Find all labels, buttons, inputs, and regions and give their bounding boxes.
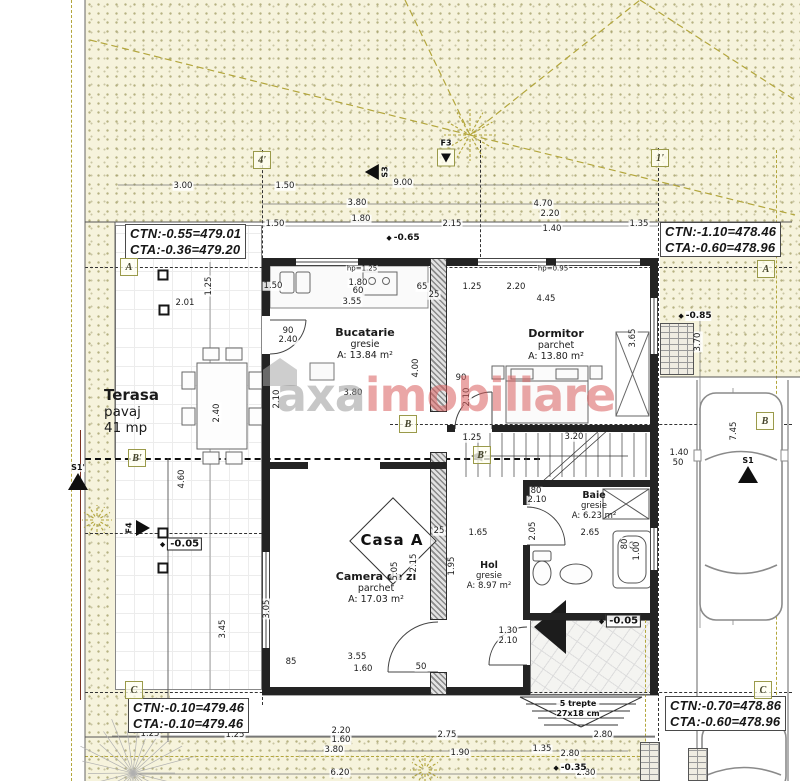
level-marker: ◆-0.65 bbox=[386, 233, 419, 243]
dimension-label: 25 bbox=[433, 527, 446, 536]
wall-hol-porch-b bbox=[523, 545, 530, 620]
triangle-icon bbox=[68, 473, 88, 490]
axis-marker-s1: S1 bbox=[738, 457, 758, 483]
fence-pier-2 bbox=[688, 748, 708, 781]
corner-level-top-left: CTN:-0.55=479.01 CTA:-0.36=479.20 bbox=[125, 224, 246, 259]
wall-hol-porch-c bbox=[523, 665, 530, 687]
room-label-hol: HolgresieA: 8.97 m² bbox=[467, 560, 512, 591]
room-finish: parchet bbox=[336, 583, 416, 594]
survey-point bbox=[158, 270, 169, 281]
survey-point bbox=[158, 563, 169, 574]
dimension-label: 7.45 bbox=[730, 421, 739, 442]
axis-marker-box: B' bbox=[473, 446, 491, 464]
dimension-label: 3.00 bbox=[173, 182, 194, 191]
room-finish: gresie bbox=[572, 501, 617, 511]
benchmark-icon: ◆ bbox=[678, 312, 683, 320]
watermark-part2: imobiliare bbox=[365, 368, 615, 422]
wall-kitchen-living-a bbox=[262, 462, 308, 469]
axis-marker-f4: F4 bbox=[124, 520, 150, 536]
dimension-label: 3.05 bbox=[263, 599, 272, 620]
dimension-label: 4.70 bbox=[533, 200, 554, 209]
dimension-label: 9.00 bbox=[393, 179, 414, 188]
triangle-icon bbox=[136, 520, 150, 536]
room-area: A: 6.23 m² bbox=[572, 511, 617, 521]
axis-marker-box: A bbox=[757, 260, 775, 278]
axis-marker-f3: F3 bbox=[437, 140, 455, 167]
axis-marker-b-prime: B' bbox=[473, 446, 491, 464]
axis-marker-s3: S3 bbox=[365, 164, 391, 180]
triangle-icon bbox=[441, 153, 451, 162]
axis-marker-b-prime: B' bbox=[128, 449, 146, 467]
dimension-label: 2.65 bbox=[580, 529, 601, 538]
cta-value: CTA:-0.60=478.96 bbox=[670, 714, 781, 730]
dimension-label: 6.20 bbox=[330, 769, 351, 778]
room-name: Hol bbox=[467, 560, 512, 571]
axis-marker-c: C bbox=[125, 681, 143, 699]
dimension-label: 2.10 bbox=[527, 496, 548, 505]
dimension-label: 25 bbox=[428, 291, 441, 300]
dimension-label: 3.55 bbox=[347, 653, 368, 662]
window-baie bbox=[650, 528, 658, 570]
cta-value: CTA:-0.36=479.20 bbox=[130, 242, 241, 258]
axis-marker-box: 1' bbox=[651, 149, 669, 167]
dimension-label: 2.10 bbox=[498, 637, 519, 646]
dimension-label: 3.20 bbox=[564, 433, 585, 442]
dimension-label: 1.50 bbox=[263, 282, 284, 291]
dimension-label: 4.60 bbox=[178, 469, 187, 490]
watermark-part1: axa bbox=[276, 368, 365, 422]
room-area: A: 8.97 m² bbox=[467, 581, 512, 591]
axis-marker-a: A bbox=[120, 258, 138, 276]
room-name: Camera de zi bbox=[336, 570, 416, 583]
dimension-label: 2.40 bbox=[213, 403, 222, 424]
corner-level-top-right: CTN:-1.10=478.46 CTA:-0.60=478.96 bbox=[660, 222, 781, 257]
axis-marker-4-prime: 4' bbox=[253, 151, 271, 169]
corner-level-bottom-left: CTN:-0.10=479.46 CTA:-0.10=479.46 bbox=[128, 698, 249, 733]
room-name: Terasa bbox=[104, 386, 159, 404]
dimension-label: hp=0.95 bbox=[537, 266, 569, 273]
level-marker: ◆-0.05 bbox=[599, 615, 641, 628]
level-marker: ◆-0.05 bbox=[160, 538, 202, 551]
room-name: Dormitor bbox=[528, 327, 584, 340]
cta-value: CTA:-0.60=478.96 bbox=[665, 240, 776, 256]
garden-wall-brick bbox=[660, 323, 694, 375]
steps-note: 5 trepte 27x18 cm bbox=[556, 699, 599, 718]
room-area: 41 mp bbox=[104, 420, 159, 436]
wall-stairs-baie bbox=[530, 480, 658, 487]
room-finish: gresie bbox=[335, 339, 395, 350]
roof-projection-lines bbox=[90, 0, 795, 215]
level-marker: ◆-0.35 bbox=[553, 763, 586, 773]
dimension-label: 1.35 bbox=[629, 220, 650, 229]
steps-note-line1: 5 trepte bbox=[556, 699, 599, 709]
dimension-label: 1.65 bbox=[468, 529, 489, 538]
steps-note-line2: 27x18 cm bbox=[556, 709, 599, 719]
dimension-label: 4.45 bbox=[536, 295, 557, 304]
dimension-label: 1.30 bbox=[498, 627, 519, 636]
dimension-label: 60 bbox=[352, 287, 365, 296]
level-value: -0.35 bbox=[561, 763, 587, 773]
dimension-label: 1.00 bbox=[633, 541, 642, 562]
entrance-arrow bbox=[534, 600, 566, 654]
dimension-label: 1.25 bbox=[462, 434, 483, 443]
dimension-label: 85 bbox=[285, 658, 298, 667]
room-area: A: 13.84 m² bbox=[335, 350, 395, 361]
axis-marker-label: F3 bbox=[440, 140, 451, 148]
dimension-label: 1.50 bbox=[275, 182, 296, 191]
wall-kitchen-living-b bbox=[380, 462, 447, 469]
dimension-label: 2.15 bbox=[442, 220, 463, 229]
room-area: A: 17.03 m² bbox=[336, 594, 416, 605]
staircase bbox=[466, 429, 646, 481]
axis-marker-box: A bbox=[120, 258, 138, 276]
door-opening-terrace bbox=[262, 316, 270, 354]
dimension-label: 1.35 bbox=[532, 745, 553, 754]
wall-south bbox=[262, 687, 530, 695]
fence-pier-1 bbox=[640, 742, 660, 781]
dimension-label: 2.80 bbox=[593, 731, 614, 740]
window-east-upper bbox=[650, 298, 658, 354]
dimension-label: 3.70 bbox=[694, 332, 703, 353]
axis-marker-label: S1 bbox=[742, 457, 753, 465]
dimension-label: 1.40 bbox=[669, 449, 690, 458]
benchmark-icon: ◆ bbox=[553, 764, 558, 772]
level-value: -0.85 bbox=[686, 311, 712, 321]
benchmark-icon: ◆ bbox=[386, 234, 391, 242]
room-area: A: 13.80 m² bbox=[528, 351, 584, 362]
dimension-label: 50 bbox=[415, 663, 428, 672]
room-label-baie: BaiegresieA: 6.23 m² bbox=[572, 490, 617, 521]
dimension-label: 2.15 bbox=[410, 553, 419, 574]
dimension-label: 2.05 bbox=[529, 521, 538, 542]
corner-level-bottom-right: CTN:-0.70=478.86 CTA:-0.60=478.96 bbox=[665, 696, 786, 731]
dimension-label: 2.75 bbox=[437, 731, 458, 740]
room-label-dormitor: DormitorparchetA: 13.80 m² bbox=[528, 327, 584, 362]
floor-plan-canvas: CTN:-0.55=479.01 CTA:-0.36=479.20 CTN:-1… bbox=[0, 0, 800, 781]
room-name: Baie bbox=[572, 490, 617, 501]
level-value: -0.05 bbox=[167, 538, 202, 551]
dimension-label: 2.01 bbox=[175, 299, 196, 308]
axis-marker-box: C bbox=[125, 681, 143, 699]
room-label-terasa: Terasapavaj41 mp bbox=[104, 386, 159, 436]
dimension-label: 3.65 bbox=[629, 328, 638, 349]
benchmark-icon: ◆ bbox=[160, 540, 165, 548]
level-value: -0.05 bbox=[606, 615, 641, 628]
benchmark-icon: ◆ bbox=[599, 617, 604, 625]
dimension-label: 1.90 bbox=[450, 749, 471, 758]
dimension-label: 2.20 bbox=[506, 283, 527, 292]
axis-marker-box: B bbox=[756, 412, 774, 430]
dimension-label: 2.80 bbox=[560, 750, 581, 759]
axis-marker-box: C bbox=[754, 681, 772, 699]
dimension-label: 2.40 bbox=[278, 336, 299, 345]
wall-center-lower bbox=[430, 672, 447, 695]
axis-marker-b: B bbox=[756, 412, 774, 430]
dimension-label: 1.40 bbox=[542, 225, 563, 234]
room-label-camera-de-zi: Camera de ziparchetA: 17.03 m² bbox=[336, 570, 416, 605]
ctn-value: CTN:-0.55=479.01 bbox=[130, 226, 241, 242]
dimension-label: 3.55 bbox=[342, 298, 363, 307]
axis-marker-label: S3 bbox=[382, 166, 390, 177]
axis-marker-1-prime: 1' bbox=[651, 149, 669, 167]
level-value: -0.65 bbox=[394, 233, 420, 243]
axis-marker-a: A bbox=[757, 260, 775, 278]
ctn-value: CTN:-0.10=479.46 bbox=[133, 700, 244, 716]
cta-value: CTA:-0.10=479.46 bbox=[133, 716, 244, 732]
level-marker: ◆-0.85 bbox=[678, 311, 711, 321]
dimension-label: 1.95 bbox=[448, 556, 457, 577]
dimension-label: 1.25 bbox=[205, 276, 214, 297]
axis-marker-c: C bbox=[754, 681, 772, 699]
watermark: axaimobiliare bbox=[276, 372, 615, 418]
window-north-center bbox=[478, 258, 546, 266]
dimension-label: hp=1.25 bbox=[346, 266, 378, 273]
ctn-value: CTN:-0.70=478.86 bbox=[670, 698, 781, 714]
dimension-label: 1.60 bbox=[331, 736, 352, 745]
ctn-value: CTN:-1.10=478.46 bbox=[665, 224, 776, 240]
axis-marker-box: B' bbox=[128, 449, 146, 467]
axis-marker-box: 4' bbox=[253, 151, 271, 169]
dimension-label: 1.50 bbox=[265, 220, 286, 229]
dimension-label: 80 bbox=[621, 538, 630, 551]
axis-marker-s1-prime: S1' bbox=[68, 464, 88, 490]
dimension-label: 5.05 bbox=[391, 561, 400, 582]
dimension-label: 2.20 bbox=[540, 210, 561, 219]
axis-marker-label: S1' bbox=[71, 464, 85, 472]
room-finish: pavaj bbox=[104, 404, 159, 420]
dimension-label: 1.80 bbox=[351, 215, 372, 224]
terrace-table-and-chairs bbox=[182, 348, 262, 464]
triangle-icon bbox=[365, 164, 379, 180]
dimension-label: 3.45 bbox=[219, 619, 228, 640]
dimension-label: 3.80 bbox=[324, 746, 345, 755]
casa-a-label: Casa A bbox=[360, 531, 423, 549]
axis-marker-label: F4 bbox=[126, 522, 134, 533]
room-finish: parchet bbox=[528, 340, 584, 351]
triangle-icon bbox=[738, 466, 758, 483]
dimension-label: 1.25 bbox=[462, 283, 483, 292]
dimension-label: 3.80 bbox=[347, 199, 368, 208]
dimension-label: 50 bbox=[672, 459, 685, 468]
room-name: Bucatarie bbox=[335, 326, 395, 339]
dimension-label: 1.60 bbox=[353, 665, 374, 674]
room-label-bucatarie: BucatariegresieA: 13.84 m² bbox=[335, 326, 395, 361]
axis-marker-box bbox=[437, 149, 455, 167]
survey-point bbox=[159, 305, 170, 316]
room-finish: gresie bbox=[467, 571, 512, 581]
dimension-label: 65 bbox=[416, 283, 429, 292]
wall-dormitor-stairs-a bbox=[447, 425, 455, 432]
